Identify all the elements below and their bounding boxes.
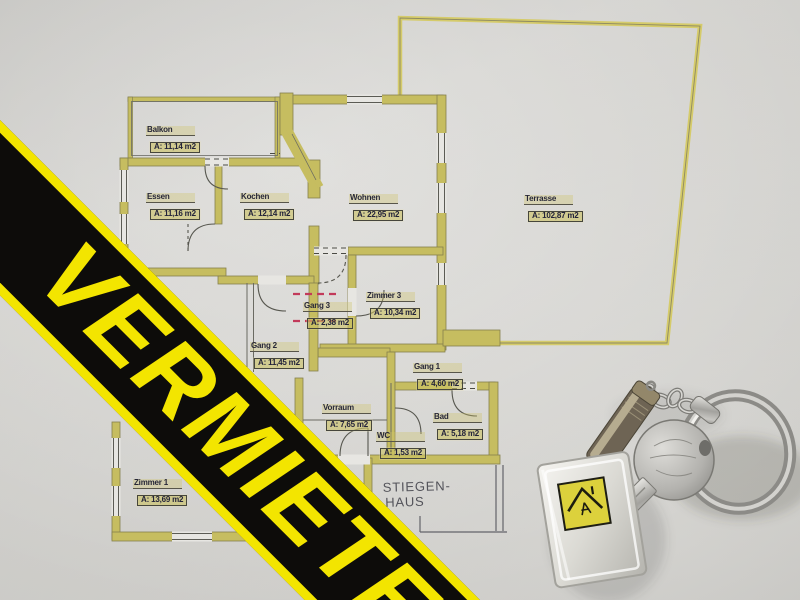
room-label-zimmer1: Zimmer 1 A: 13,69 m2 (133, 473, 187, 507)
room-label-terrasse: Terrasse A: 102,87 m2 (524, 189, 583, 223)
room-label-essen: Essen A: 11,16 m2 (146, 187, 200, 221)
room-label-gang1: Gang 1 A: 4,60 m2 (413, 357, 463, 391)
stairwell-label: STIEGEN- HAUS (383, 478, 452, 510)
floorplan-photo: Balkon A: 11,14 m2 Essen A: 11,16 m2 Koc… (0, 0, 800, 600)
room-label-zimmer3: Zimmer 3 A: 10,34 m2 (366, 286, 420, 320)
room-label-gang2: Gang 2 A: 11,45 m2 (250, 336, 304, 370)
room-label-wohnen: Wohnen A: 22,95 m2 (349, 188, 403, 222)
room-label-vorraum: Vorraum A: 7,65 m2 (322, 398, 372, 432)
room-label-wc: WC A: 1,53 m2 (376, 426, 426, 460)
room-label-balkon: Balkon A: 11,14 m2 (146, 120, 200, 154)
room-label-gang3: Gang 3 A: 2,38 m2 (303, 296, 353, 330)
room-label-bad: Bad A: 5,18 m2 (433, 407, 483, 441)
room-label-kochen: Kochen A: 12,14 m2 (240, 187, 294, 221)
